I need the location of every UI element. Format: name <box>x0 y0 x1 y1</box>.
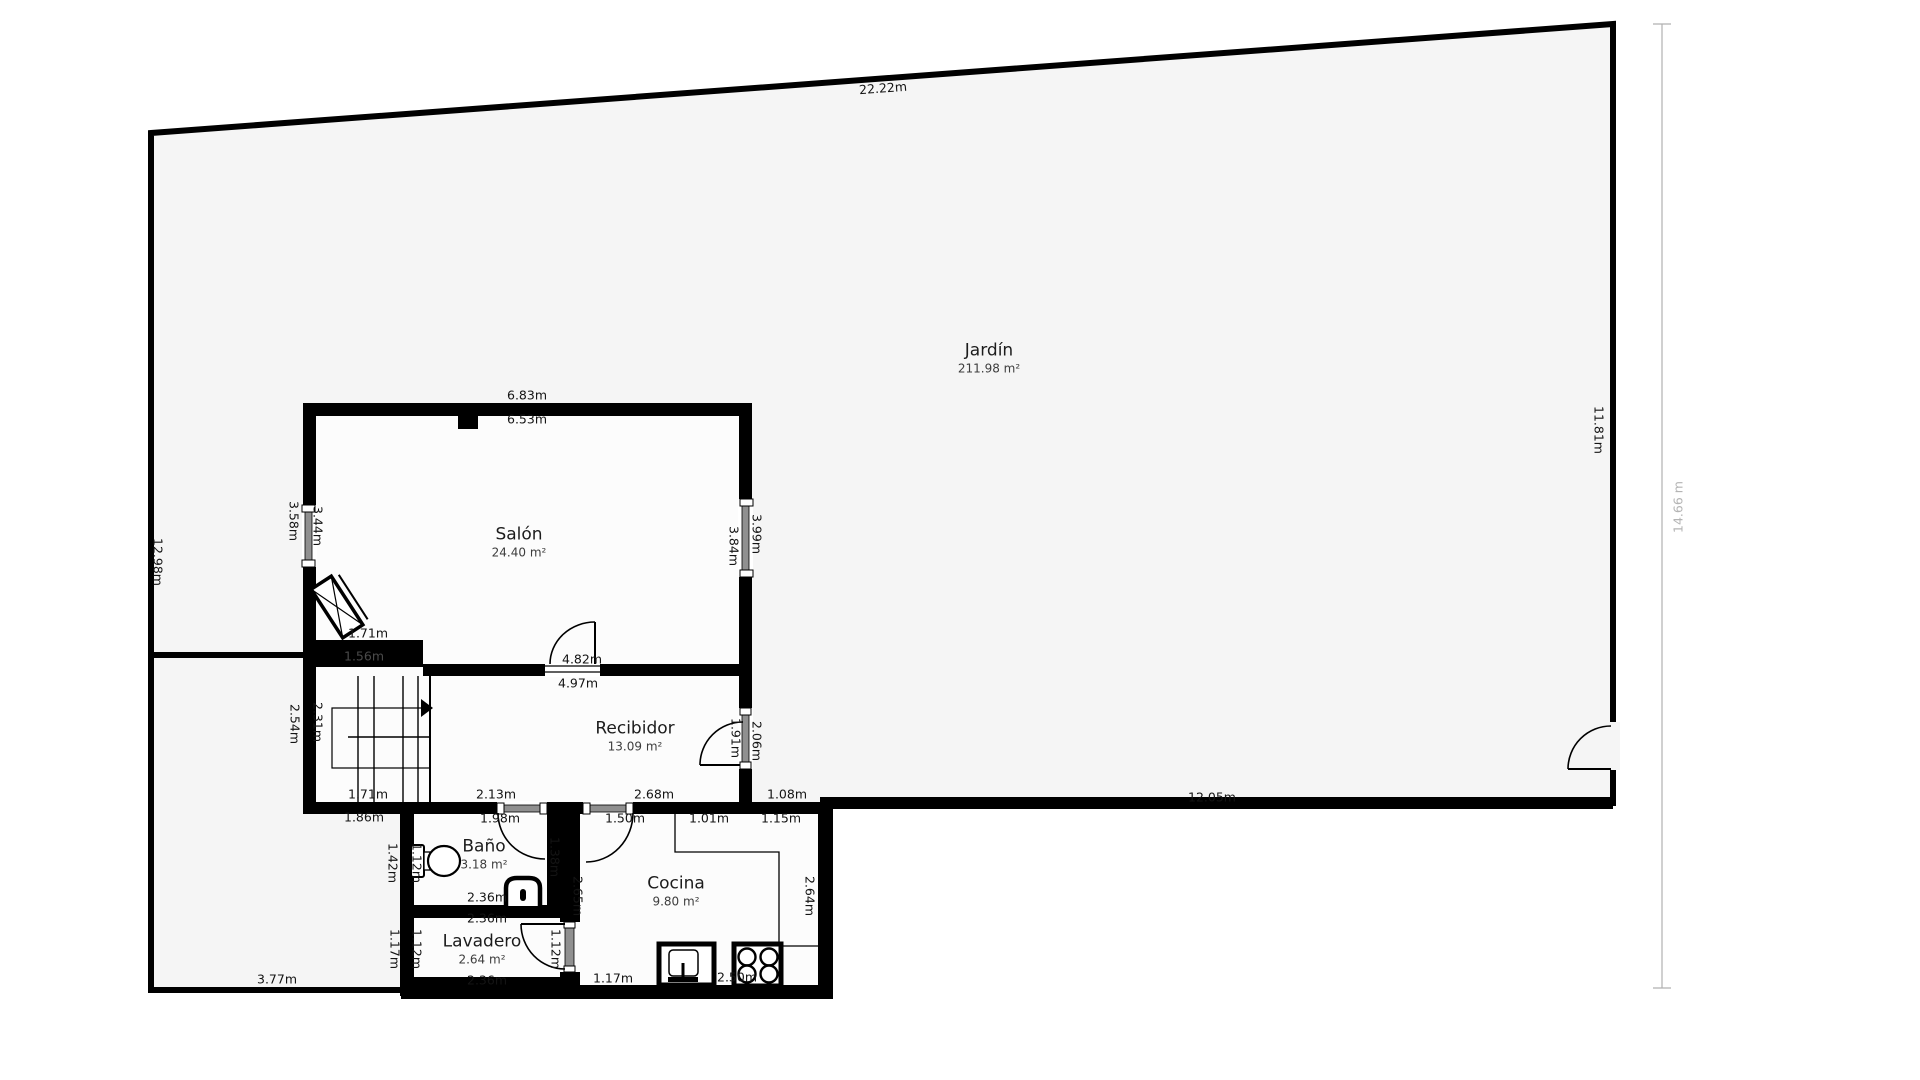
bano-entry-window <box>497 801 547 815</box>
toilet-icon <box>411 845 460 877</box>
floor-plan-drawing <box>0 0 1920 1080</box>
floor-plan-canvas: Jardín211.98 m²Salón24.40 m²Recibidor13.… <box>0 0 1920 1080</box>
stove-icon <box>734 944 781 986</box>
salon-window-left <box>302 505 317 567</box>
salon-window-right <box>738 499 753 577</box>
kitchen-sink-icon <box>659 944 714 985</box>
cocina-entry-window <box>583 801 633 815</box>
overall-dimension-line <box>1653 24 1671 988</box>
pedestal-sink-icon <box>506 878 540 906</box>
